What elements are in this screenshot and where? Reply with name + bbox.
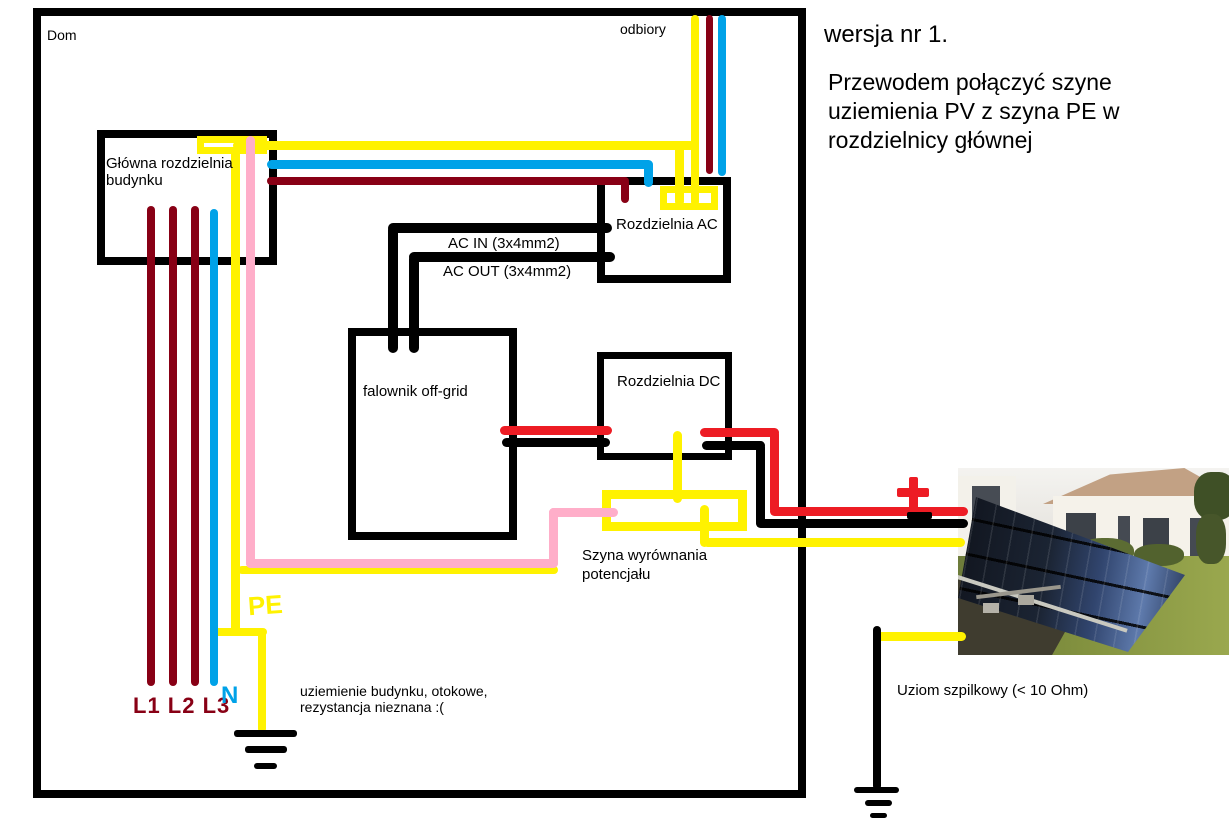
pe-label: PE [247, 589, 284, 622]
wire-dc-plus-out [700, 428, 779, 437]
wire-pe-vertical-main-board [231, 150, 240, 634]
wire-phase-loads [706, 15, 713, 174]
house-label: Dom [47, 27, 77, 43]
photo-mount-block-1 [983, 603, 999, 613]
inverter-box [348, 328, 517, 540]
wire-bonding-horizontal [246, 559, 558, 568]
wire-ac-in-vertical [388, 225, 398, 353]
wire-dc-minus-to-panel [756, 519, 968, 528]
pv-installation-photo [958, 468, 1229, 655]
wire-bonding-to-eq-bus [549, 508, 618, 517]
building-earth-label: uziemienie budynku, otokowe, rezystancja… [300, 683, 488, 715]
earth-rod-conductor [873, 626, 881, 790]
wire-pe-drop-to-ac-bus [675, 142, 684, 206]
wire-phase-l3 [191, 206, 199, 686]
inverter-label: falownik off-grid [363, 383, 468, 400]
ground-symbol-right-bar1 [854, 787, 899, 793]
wire-phase-l1 [147, 206, 155, 686]
wire-neutral-vertical-n [210, 209, 218, 686]
ac-board-label: Rozdzielnia AC [616, 216, 718, 233]
wire-ac-in-horizontal [388, 223, 612, 233]
photo-bush-3 [1196, 514, 1226, 564]
ac-board-pe-bus [660, 186, 718, 210]
photo-mount-block-2 [1018, 595, 1034, 605]
dc-board-label: Rozdzielnia DC [617, 373, 720, 390]
wire-phase-l2 [169, 206, 177, 686]
wire-neutral-loads [718, 15, 726, 176]
wire-neutral-main-horizontal [267, 160, 653, 169]
loads-label: odbiory [620, 21, 666, 37]
wire-pe-dc-to-eq-bus [673, 431, 682, 503]
wire-dc-minus-inverter [502, 438, 610, 447]
wire-neutral-drop-ac [644, 161, 653, 187]
earth-rod-label: Uziom szpilkowy (< 10 Ohm) [897, 682, 1088, 699]
minus-symbol [907, 512, 932, 519]
wire-earth-left-vertical [258, 630, 266, 733]
photo-tree [1194, 472, 1229, 520]
wire-pe-loads [691, 15, 699, 206]
instruction-note: Przewodem połączyć szyne uziemienia PV z… [828, 68, 1119, 155]
ground-symbol-left-bar1 [234, 730, 297, 737]
wire-bonding-vertical-main [246, 136, 255, 568]
wire-phase-main-horizontal [267, 177, 629, 185]
neutral-label: N [221, 682, 238, 710]
phase-labels: L1 L2 L3 [133, 693, 230, 719]
version-label: wersja nr 1. [824, 22, 948, 48]
ac-out-label: AC OUT (3x4mm2) [443, 263, 571, 280]
wire-pe-to-panel [703, 538, 965, 547]
paint-canvas: Dom odbiory Główna rozdzielnia budynku R… [0, 0, 1229, 840]
wire-dc-plus-inverter [500, 426, 612, 435]
wire-ac-out-horizontal [409, 252, 615, 262]
ground-symbol-left-bar2 [245, 746, 287, 753]
wire-dc-plus-to-panel [770, 507, 968, 516]
wire-ac-out-vertical [409, 254, 419, 353]
ac-in-label: AC IN (3x4mm2) [448, 235, 560, 252]
equipotential-bus-label: Szyna wyrównania potencjału [582, 546, 707, 584]
main-board-label: Główna rozdzielnia budynku [106, 155, 233, 189]
ground-symbol-left-bar3 [254, 763, 277, 769]
wire-dc-minus-drop [756, 443, 765, 527]
plus-symbol-vertical [909, 477, 918, 509]
wire-phase-stub-ac [621, 179, 629, 203]
ground-symbol-right-bar2 [865, 800, 892, 806]
wire-bonding-riser [549, 508, 558, 568]
wire-pe-main-horizontal [233, 141, 695, 150]
wire-dc-plus-drop [770, 430, 779, 514]
ground-symbol-right-bar3 [870, 813, 887, 818]
wire-earth-rod-horizontal [877, 632, 966, 641]
